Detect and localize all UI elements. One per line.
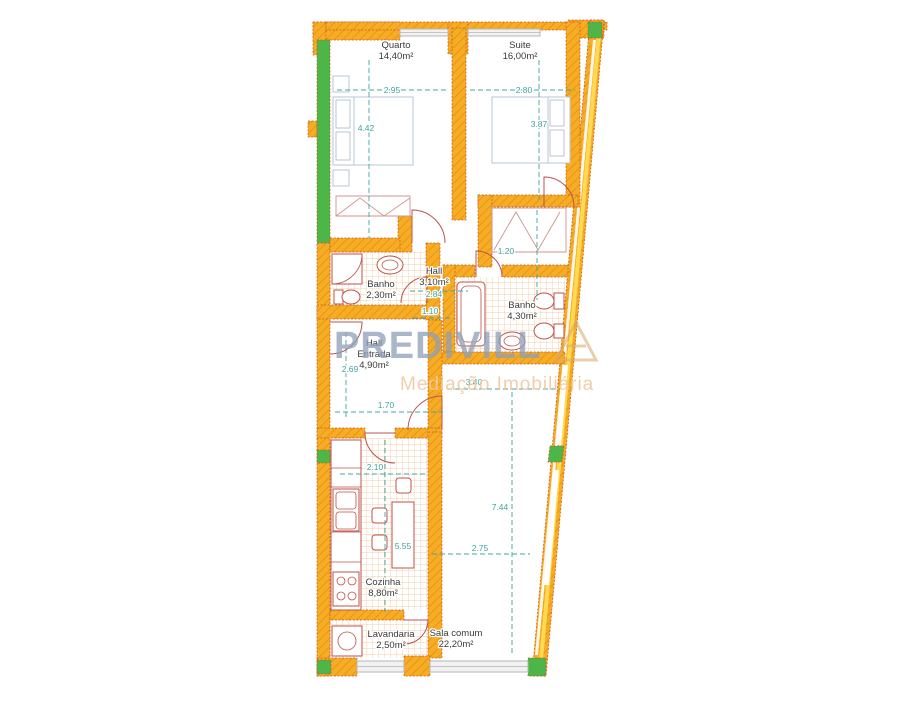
quarto-door — [412, 210, 445, 243]
room-label-banho-suite: Banho — [508, 300, 535, 311]
dim-suite-depth: 3.87 — [531, 119, 548, 129]
room-label-lavandaria: Lavandaria — [367, 629, 415, 640]
room-label-quarto: Quarto — [381, 40, 410, 51]
room-area-quarto: 14,40m² — [379, 51, 414, 62]
dim-quarto-depth: 4.42 — [358, 123, 375, 133]
room-area-hall: 3,10m² — [419, 277, 449, 288]
dim-sala-width: 2.75 — [472, 543, 489, 553]
left-window-strip — [317, 40, 330, 243]
dim-quarto-width: 2.95 — [384, 85, 401, 95]
dim-hall-opening: 1.10 — [422, 306, 439, 316]
dim-suite-width: 2.80 — [516, 85, 533, 95]
room-area-banho-small: 2,30m² — [366, 290, 396, 301]
room-area-cozinha: 8,80m² — [368, 588, 398, 599]
shower — [332, 254, 362, 284]
floorplan-svg: 2.95 2.80 4.42 3.87 1.20 2.84 1.10 2.69 … — [0, 0, 917, 720]
kitchen-table — [392, 502, 414, 568]
room-label-cozinha: Cozinha — [366, 577, 402, 588]
room-area-sala-comum: 22,20m² — [439, 639, 474, 650]
room-label-suite: Suite — [509, 40, 531, 51]
floorplan-canvas: 2.95 2.80 4.42 3.87 1.20 2.84 1.10 2.69 … — [0, 0, 917, 720]
dim-sala-depth: 7.44 — [492, 502, 509, 512]
chair — [396, 478, 411, 493]
watermark-tagline: Mediação Imobiliária — [400, 374, 594, 395]
dim-cozinha-depth: 5.55 — [395, 541, 412, 551]
kitchen-sink — [333, 489, 359, 531]
dim-hall-width: 2.84 — [426, 289, 443, 299]
room-label-sala-comum: Sala comum — [430, 628, 483, 639]
toilet — [534, 293, 554, 309]
toilet — [342, 290, 360, 304]
watermark-brand: PREDIVILL — [334, 325, 541, 367]
room-area-suite: 16,00m² — [503, 51, 538, 62]
sink — [377, 256, 403, 274]
dim-entrada-width: 1.70 — [378, 400, 395, 410]
dim-cozinha-width: 2.10 — [367, 462, 384, 472]
room-label-banho-small: Banho — [367, 279, 394, 290]
quarto-wardrobe — [336, 196, 410, 216]
stove — [333, 572, 359, 606]
dim-closet-width: 1.20 — [498, 246, 515, 256]
room-label-hall: Hall — [426, 266, 442, 277]
room-area-banho-suite: 4,30m² — [507, 311, 537, 322]
washing-machine — [332, 626, 362, 656]
room-area-lavandaria: 2,50m² — [376, 640, 406, 651]
